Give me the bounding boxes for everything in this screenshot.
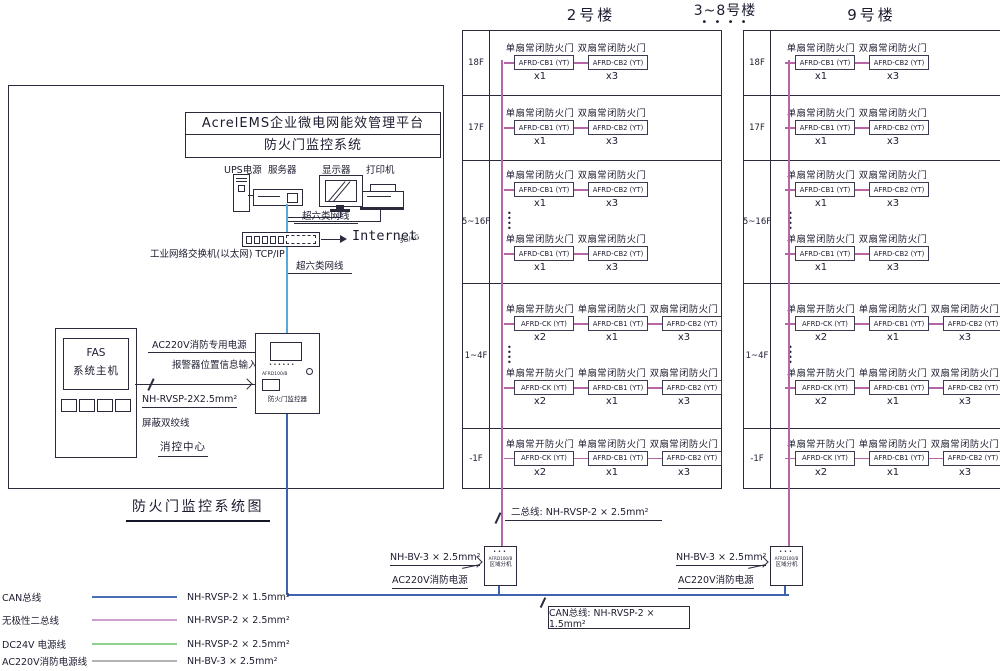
ups-server-wire [248,195,253,196]
building9-two-bus-riser [788,60,790,547]
ac220-dedicated-wire [148,352,255,353]
door-type-label: 双扇常闭防火门 [648,367,720,380]
door-count: x2 [785,466,857,480]
door-type-label: 单扇常开防火门 [504,438,576,451]
door-module-box: AFRD-CB2 (YT) [943,451,1000,466]
fas-indicator-row [61,399,131,412]
door-type-label: 双扇常闭防火门 [857,169,929,182]
door-module-box: AFRD-CB1 (YT) [514,55,574,70]
door-type-label: 双扇常闭防火门 [576,107,648,120]
door-labels-row: 单扇常开防火门单扇常闭防火门双扇常闭防火门 [504,438,722,451]
legend-cable-spec: NH-RVSP-2 × 2.5mm² [187,639,290,650]
door-counts-row: x2x1x3 [785,331,1000,345]
printer-base [360,207,404,210]
door-counts-row: x2x1x3 [785,466,1000,480]
door-type-label: 单扇常开防火门 [504,303,576,316]
floor-content: 单扇常闭防火门双扇常闭防火门AFRD-CB1 (YT)AFRD-CB2 (YT)… [771,161,1000,283]
legend-cable-spec: NH-RVSP-2 × 1.5mm² [187,592,290,603]
door-counts-row: x2x1x3 [504,331,722,345]
door-module-box: AFRD-CB1 (YT) [514,120,574,135]
door-module-box: AFRD-CB1 (YT) [869,316,929,331]
door-group: 单扇常开防火门单扇常闭防火门双扇常闭防火门AFRD-CK (YT)AFRD-CB… [785,303,1000,345]
floor-row: 17F单扇常闭防火门双扇常闭防火门AFRD-CB1 (YT)AFRD-CB2 (… [744,96,1000,161]
door-type-label: 单扇常闭防火门 [576,303,648,316]
door-labels-row: 单扇常闭防火门双扇常闭防火门 [785,169,1000,182]
legend-wire-swatch [92,596,177,598]
door-module-box: AFRD-CB1 (YT) [869,451,929,466]
door-count: x2 [785,395,857,409]
door-count: x3 [576,70,648,84]
legend-cable-spec: NH-RVSP-2 × 2.5mm² [187,615,290,626]
floor-label: 1~4F [463,284,490,428]
door-module-box: AFRD-CB2 (YT) [662,380,722,395]
door-count: x1 [576,331,648,345]
door-labels-row: 单扇常闭防火门双扇常闭防火门 [785,42,1000,55]
door-module-box: AFRD-CB2 (YT) [588,246,648,261]
door-module-box: AFRD-CK (YT) [514,451,574,466]
door-type-label: 单扇常闭防火门 [504,169,576,182]
door-counts-row: x1x3 [785,261,1000,275]
legend-label: CAN总线 [2,590,92,604]
door-boxes-row: AFRD-CB1 (YT)AFRD-CB2 (YT) [785,182,1000,197]
door-count: x3 [929,331,1000,345]
door-count: x1 [576,395,648,409]
door-type-label: 双扇常闭防火门 [576,169,648,182]
door-type-label: 单扇常闭防火门 [785,42,857,55]
door-labels-row: 单扇常开防火门单扇常闭防火门双扇常闭防火门 [785,367,1000,380]
door-type-label: 单扇常闭防火门 [504,233,576,246]
floor-content: 单扇常闭防火门双扇常闭防火门AFRD-CB1 (YT)AFRD-CB2 (YT)… [490,161,721,283]
regional-unit-b2: ••• AFRD100/B 区域分机 [484,546,517,586]
door-labels-row: 单扇常开防火门单扇常闭防火门双扇常闭防火门 [504,303,722,316]
door-count: x2 [504,331,576,345]
server-label: 服务器 [268,162,297,176]
door-type-label: 双扇常闭防火门 [648,438,720,451]
controller-model: AFRD100/B [262,372,287,377]
door-type-label: 双扇常闭防火门 [648,303,720,316]
door-labels-row: 单扇常闭防火门双扇常闭防火门 [504,233,721,246]
ups-tower-icon [233,174,250,212]
door-counts-row: x2x1x3 [504,466,722,480]
b2-nhbv-label: NH-BV-3 × 2.5mm² [390,552,480,566]
door-boxes-row: AFRD-CK (YT)AFRD-CB1 (YT)AFRD-CB2 (YT) [504,316,722,331]
door-type-label: 单扇常开防火门 [785,367,857,380]
building2-title: 2号楼 [462,4,720,25]
door-type-label: 单扇常闭防火门 [857,438,929,451]
door-labels-row: 单扇常闭防火门双扇常闭防火门 [785,107,1000,120]
door-type-label: 双扇常闭防火门 [857,107,929,120]
door-count: x1 [576,466,648,480]
wire-legend: CAN总线NH-RVSP-2 × 1.5mm²无极性二总线NH-RVSP-2 ×… [2,589,290,671]
door-labels-row: 单扇常闭防火门双扇常闭防火门 [785,233,1000,246]
platform-title-box: AcrelEMS企业微电网能效管理平台 防火门监控系统 [185,112,441,158]
door-group: 单扇常开防火门单扇常闭防火门双扇常闭防火门AFRD-CK (YT)AFRD-CB… [785,438,1000,480]
platform-title-line1: AcrelEMS企业微电网能效管理平台 [186,113,440,135]
door-type-label: 双扇常闭防火门 [929,367,1000,380]
door-labels-row: 单扇常开防火门单扇常闭防火门双扇常闭防火门 [785,438,1000,451]
door-count: x3 [576,197,648,211]
building9-title: 9号楼 [743,4,1000,25]
door-count: x2 [504,395,576,409]
door-module-box: AFRD-CB2 (YT) [588,55,648,70]
door-module-box: AFRD-CK (YT) [795,451,855,466]
b9-nhbv-label: NH-BV-3 × 2.5mm² [676,552,766,566]
controller-buttons: •••••• [269,362,296,368]
door-module-box: AFRD-CB2 (YT) [943,316,1000,331]
door-module-box: AFRD-CB1 (YT) [514,182,574,197]
door-labels-row: 单扇常开防火门单扇常闭防火门双扇常闭防火门 [504,367,722,380]
door-labels-row: 单扇常闭防火门双扇常闭防火门 [504,42,721,55]
door-boxes-row: AFRD-CB1 (YT)AFRD-CB2 (YT) [504,246,721,261]
door-group: 单扇常开防火门单扇常闭防火门双扇常闭防火门AFRD-CK (YT)AFRD-CB… [504,367,722,409]
door-count: x3 [929,395,1000,409]
door-type-label: 双扇常闭防火门 [576,42,648,55]
floor-label: 5~16F [744,161,771,283]
building9-table: 18F单扇常闭防火门双扇常闭防火门AFRD-CB1 (YT)AFRD-CB2 (… [743,30,1000,489]
alarm-input-wire [135,384,255,385]
door-module-box: AFRD-CB1 (YT) [795,182,855,197]
floor-row: 1~4F单扇常开防火门单扇常闭防火门双扇常闭防火门AFRD-CK (YT)AFR… [744,284,1000,429]
door-group: 单扇常闭防火门双扇常闭防火门AFRD-CB1 (YT)AFRD-CB2 (YT)… [504,233,721,275]
door-count: x1 [857,466,929,480]
door-count: x1 [504,197,576,211]
regional-unit-name: 区域分机 [771,562,802,569]
door-type-label: 单扇常闭防火门 [785,233,857,246]
floor-content: 单扇常闭防火门双扇常闭防火门AFRD-CB1 (YT)AFRD-CB2 (YT)… [490,31,721,95]
legend-row: CAN总线NH-RVSP-2 × 1.5mm² [2,589,290,605]
door-module-box: AFRD-CB1 (YT) [588,380,648,395]
door-group: 单扇常开防火门单扇常闭防火门双扇常闭防火门AFRD-CK (YT)AFRD-CB… [504,303,722,345]
door-module-box: AFRD-CK (YT) [514,316,574,331]
door-counts-row: x1x3 [785,135,1000,149]
door-boxes-row: AFRD-CK (YT)AFRD-CB1 (YT)AFRD-CB2 (YT) [785,316,1000,331]
floor-content: 单扇常闭防火门双扇常闭防火门AFRD-CB1 (YT)AFRD-CB2 (YT)… [490,96,721,160]
diagram-title: 防火门监控系统图 [126,496,270,522]
door-module-box: AFRD-CB2 (YT) [869,246,929,261]
door-type-label: 双扇常闭防火门 [857,42,929,55]
door-boxes-row: AFRD-CB1 (YT)AFRD-CB2 (YT) [785,246,1000,261]
two-bus-label: 二总线: NH-RVSP-2 × 2.5mm² [505,504,662,521]
monitor-icon [319,175,363,207]
door-counts-row: x1x3 [785,197,1000,211]
door-module-box: AFRD-CK (YT) [795,380,855,395]
regional-unit-b9: ••• AFRD100/B 区域分机 [770,546,803,586]
floor-content: 单扇常闭防火门双扇常闭防火门AFRD-CB1 (YT)AFRD-CB2 (YT)… [771,96,1000,160]
door-boxes-row: AFRD-CB1 (YT)AFRD-CB2 (YT) [785,55,1000,70]
printer-label: 打印机 [366,162,395,176]
door-counts-row: x1x3 [504,70,721,84]
legend-cable-spec: NH-BV-3 × 2.5mm² [187,656,277,667]
door-count: x2 [785,331,857,345]
door-counts-row: x1x3 [504,197,721,211]
ellipsis-dots: • • • • [507,211,721,233]
legend-label: AC220V消防电源线 [2,654,92,668]
door-count: x1 [857,395,929,409]
door-module-box: AFRD-CB2 (YT) [588,182,648,197]
cat6-label-lower: 超六类网线 [288,258,352,274]
door-count: x3 [857,197,929,211]
door-type-label: 单扇常闭防火门 [785,107,857,120]
door-count: x3 [648,395,720,409]
door-group: 单扇常开防火门单扇常闭防火门双扇常闭防火门AFRD-CK (YT)AFRD-CB… [785,367,1000,409]
door-module-box: AFRD-CB1 (YT) [869,380,929,395]
door-module-box: AFRD-CB1 (YT) [588,451,648,466]
floor-label: 5~16F [463,161,490,283]
door-module-box: AFRD-CB1 (YT) [588,316,648,331]
door-count: x1 [504,70,576,84]
ellipsis-dots: • • • • [788,345,1000,367]
door-module-box: AFRD-CB2 (YT) [869,55,929,70]
legend-label: DC24V 电源线 [2,637,92,651]
door-module-box: AFRD-CB1 (YT) [795,120,855,135]
door-counts-row: x2x1x3 [785,395,1000,409]
door-boxes-row: AFRD-CB1 (YT)AFRD-CB2 (YT) [504,55,721,70]
door-count: x3 [857,135,929,149]
b2-ac220-label: AC220V消防电源 [392,572,468,589]
door-counts-row: x1x3 [504,135,721,149]
door-boxes-row: AFRD-CB1 (YT)AFRD-CB2 (YT) [785,120,1000,135]
controller-keypad [262,379,280,391]
floor-content: 单扇常闭防火门双扇常闭防火门AFRD-CB1 (YT)AFRD-CB2 (YT)… [771,31,1000,95]
door-module-box: AFRD-CB2 (YT) [943,380,1000,395]
internet-arrow-line [321,239,340,240]
floor-label: 18F [463,31,490,95]
door-module-box: AFRD-CB1 (YT) [795,246,855,261]
door-module-box: AFRD-CB2 (YT) [662,451,722,466]
internet-arrow-icon [340,235,347,243]
floor-label: 17F [744,96,771,160]
door-boxes-row: AFRD-CK (YT)AFRD-CB1 (YT)AFRD-CB2 (YT) [785,380,1000,395]
legend-label: 无极性二总线 [2,613,92,627]
regional-unit-name: 区域分机 [485,562,516,569]
door-labels-row: 单扇常闭防火门双扇常闭防火门 [504,169,721,182]
fas-label-line2: 系统主机 [64,363,128,378]
door-count: x1 [785,135,857,149]
door-type-label: 双扇常闭防火门 [576,233,648,246]
door-labels-row: 单扇常开防火门单扇常闭防火门双扇常闭防火门 [785,303,1000,316]
ellipsis-dots: • • • • [507,345,722,367]
floor-label: -1F [463,429,490,488]
floor-row: 18F单扇常闭防火门双扇常闭防火门AFRD-CB1 (YT)AFRD-CB2 (… [744,31,1000,96]
door-boxes-row: AFRD-CK (YT)AFRD-CB1 (YT)AFRD-CB2 (YT) [785,451,1000,466]
alarm-input-label: 报警器位置信息输入 [172,357,258,371]
floor-row: -1F单扇常开防火门单扇常闭防火门双扇常闭防火门AFRD-CK (YT)AFRD… [744,429,1000,488]
ethernet-switch-icon [242,232,320,247]
door-count: x3 [857,70,929,84]
door-type-label: 单扇常闭防火门 [857,367,929,380]
door-type-label: 单扇常闭防火门 [504,107,576,120]
can-bus-label-box: CAN总线: NH-RVSP-2 × 1.5mm² [548,606,690,629]
fire-door-controller: •••••• AFRD100/B 防火门监控器 [255,333,320,414]
can-bus-leader-tick [540,597,546,608]
door-module-box: AFRD-CB2 (YT) [869,120,929,135]
floor-content: 单扇常开防火门单扇常闭防火门双扇常闭防火门AFRD-CK (YT)AFRD-CB… [490,284,722,428]
controller-name: 防火门监控器 [256,393,319,403]
door-count: x3 [929,466,1000,480]
switch-label: 工业网络交换机(以太网) TCP/IP [150,246,285,260]
door-boxes-row: AFRD-CK (YT)AFRD-CB1 (YT)AFRD-CB2 (YT) [504,451,722,466]
fire-center-label: 消控中心 [158,439,208,457]
floor-label: 17F [463,96,490,160]
door-group: 单扇常闭防火门双扇常闭防火门AFRD-CB1 (YT)AFRD-CB2 (YT)… [785,233,1000,275]
shielded-pair-label: 屏蔽双绞线 [142,415,190,429]
door-module-box: AFRD-CB2 (YT) [662,316,722,331]
door-count: x1 [504,261,576,275]
door-module-box: AFRD-CB1 (YT) [514,246,574,261]
door-count: x3 [576,261,648,275]
door-boxes-row: AFRD-CB1 (YT)AFRD-CB2 (YT) [504,182,721,197]
door-module-box: AFRD-CK (YT) [514,380,574,395]
door-count: x3 [648,466,720,480]
building2-two-bus-riser [501,60,503,547]
door-module-box: AFRD-CK (YT) [795,316,855,331]
floor-row: 5~16F单扇常闭防火门双扇常闭防火门AFRD-CB1 (YT)AFRD-CB2… [744,161,1000,284]
door-count: x2 [504,466,576,480]
legend-wire-swatch [92,660,177,662]
door-labels-row: 单扇常闭防火门双扇常闭防火门 [504,107,721,120]
legend-row: 无极性二总线NH-RVSP-2 × 2.5mm² [2,612,290,628]
server-printer-wire-v [380,210,381,222]
door-group: 单扇常闭防火门双扇常闭防火门AFRD-CB1 (YT)AFRD-CB2 (YT)… [504,42,721,84]
ac220-dedicated-label: AC220V消防专用电源 [152,337,247,351]
door-type-label: 单扇常开防火门 [785,303,857,316]
server-icon [253,189,303,206]
door-boxes-row: AFRD-CB1 (YT)AFRD-CB2 (YT) [504,120,721,135]
door-type-label: 双扇常闭防火门 [857,233,929,246]
door-type-label: 单扇常闭防火门 [576,367,648,380]
door-count: x1 [504,135,576,149]
door-boxes-row: AFRD-CK (YT)AFRD-CB1 (YT)AFRD-CB2 (YT) [504,380,722,395]
door-count: x1 [857,331,929,345]
cable-spec-label: NH-RVSP-2X2.5mm² [142,394,237,408]
floor-content: 单扇常开防火门单扇常闭防火门双扇常闭防火门AFRD-CK (YT)AFRD-CB… [490,429,722,488]
door-type-label: 单扇常闭防火门 [576,438,648,451]
floor-content: 单扇常开防火门单扇常闭防火门双扇常闭防火门AFRD-CK (YT)AFRD-CB… [771,429,1000,488]
door-count: x3 [576,135,648,149]
legend-row: DC24V 电源线NH-RVSP-2 × 2.5mm² [2,636,290,652]
door-type-label: 双扇常闭防火门 [929,303,1000,316]
two-bus-leader-tick [495,512,501,524]
floor-label: 1~4F [744,284,771,428]
floor-label: -1F [744,429,771,488]
floor-content: 单扇常开防火门单扇常闭防火门双扇常闭防火门AFRD-CK (YT)AFRD-CB… [771,284,1000,428]
door-group: 单扇常闭防火门双扇常闭防火门AFRD-CB1 (YT)AFRD-CB2 (YT)… [785,107,1000,149]
legend-row: AC220V消防电源线NH-BV-3 × 2.5mm² [2,653,290,669]
door-count: x1 [785,70,857,84]
door-count: x3 [857,261,929,275]
door-count: x3 [648,331,720,345]
door-group: 单扇常闭防火门双扇常闭防火门AFRD-CB1 (YT)AFRD-CB2 (YT)… [504,169,721,211]
legend-wire-swatch [92,643,177,645]
door-type-label: 单扇常开防火门 [504,367,576,380]
can-bus-main-line [287,594,789,596]
regional-unit-leds: ••• [771,549,802,556]
b9-ac220-label: AC220V消防电源 [678,572,754,589]
door-counts-row: x2x1x3 [504,395,722,409]
door-counts-row: x1x3 [785,70,1000,84]
door-module-box: AFRD-CB1 (YT) [795,55,855,70]
door-type-label: 单扇常开防火门 [785,438,857,451]
cat6-label-upper: 超六类网线 [294,208,358,224]
door-counts-row: x1x3 [504,261,721,275]
door-type-label: 单扇常闭防火门 [504,42,576,55]
fas-host-cabinet: FAS 系统主机 [55,328,137,458]
door-type-label: 单扇常闭防火门 [857,303,929,316]
regional-unit-leds: ••• [485,549,516,556]
door-group: 单扇常闭防火门双扇常闭防火门AFRD-CB1 (YT)AFRD-CB2 (YT)… [785,42,1000,84]
fas-label-line1: FAS [64,347,128,359]
door-group: 单扇常闭防火门双扇常闭防火门AFRD-CB1 (YT)AFRD-CB2 (YT)… [785,169,1000,211]
door-type-label: 双扇常闭防火门 [929,438,1000,451]
door-module-box: AFRD-CB2 (YT) [588,120,648,135]
door-count: x1 [785,197,857,211]
door-type-label: 单扇常闭防火门 [785,169,857,182]
platform-title-line2: 防火门监控系统 [186,135,440,156]
door-module-box: AFRD-CB2 (YT) [869,182,929,197]
legend-wire-swatch [92,619,177,621]
door-group: 单扇常闭防火门双扇常闭防火门AFRD-CB1 (YT)AFRD-CB2 (YT)… [504,107,721,149]
controller-screen [270,342,302,361]
floor-label: 18F [744,31,771,95]
ellipsis-dots: • • • • [788,211,1000,233]
controller-knob-icon [306,368,313,375]
door-count: x1 [785,261,857,275]
diagram-canvas: 2号楼 3~8号楼 • • • • 9号楼 AcrelEMS企业微电网能效管理平… [0,0,1000,671]
door-group: 单扇常开防火门单扇常闭防火门双扇常闭防火门AFRD-CK (YT)AFRD-CB… [504,438,722,480]
can-bus-controller-drop [286,411,288,595]
